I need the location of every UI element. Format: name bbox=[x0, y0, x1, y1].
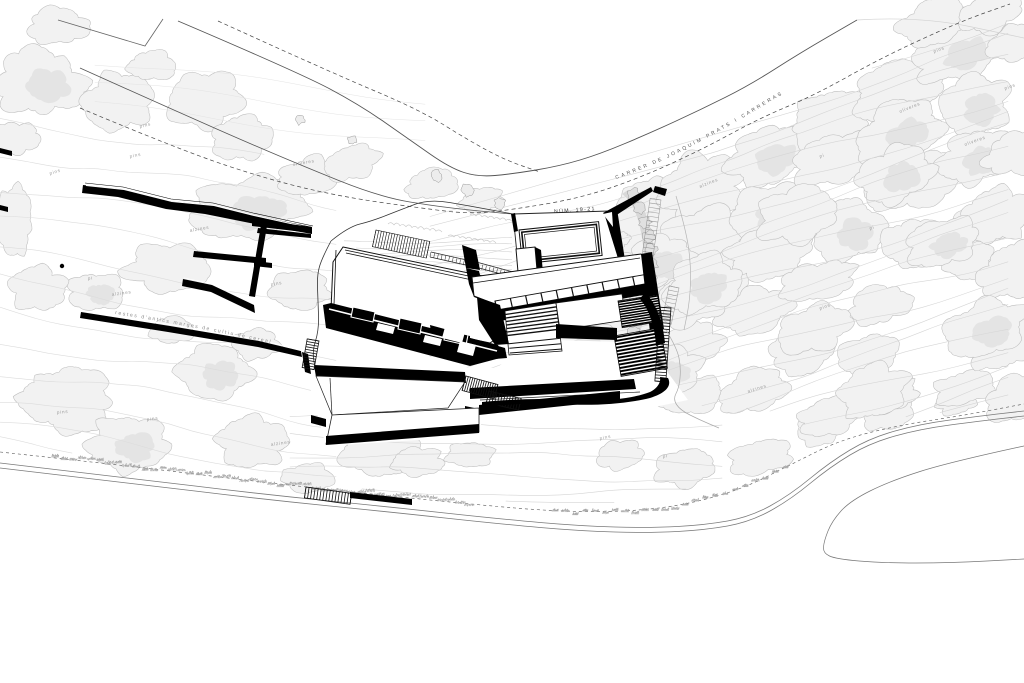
svg-text:pi: pi bbox=[662, 453, 668, 459]
svg-text:pi: pi bbox=[87, 275, 93, 281]
